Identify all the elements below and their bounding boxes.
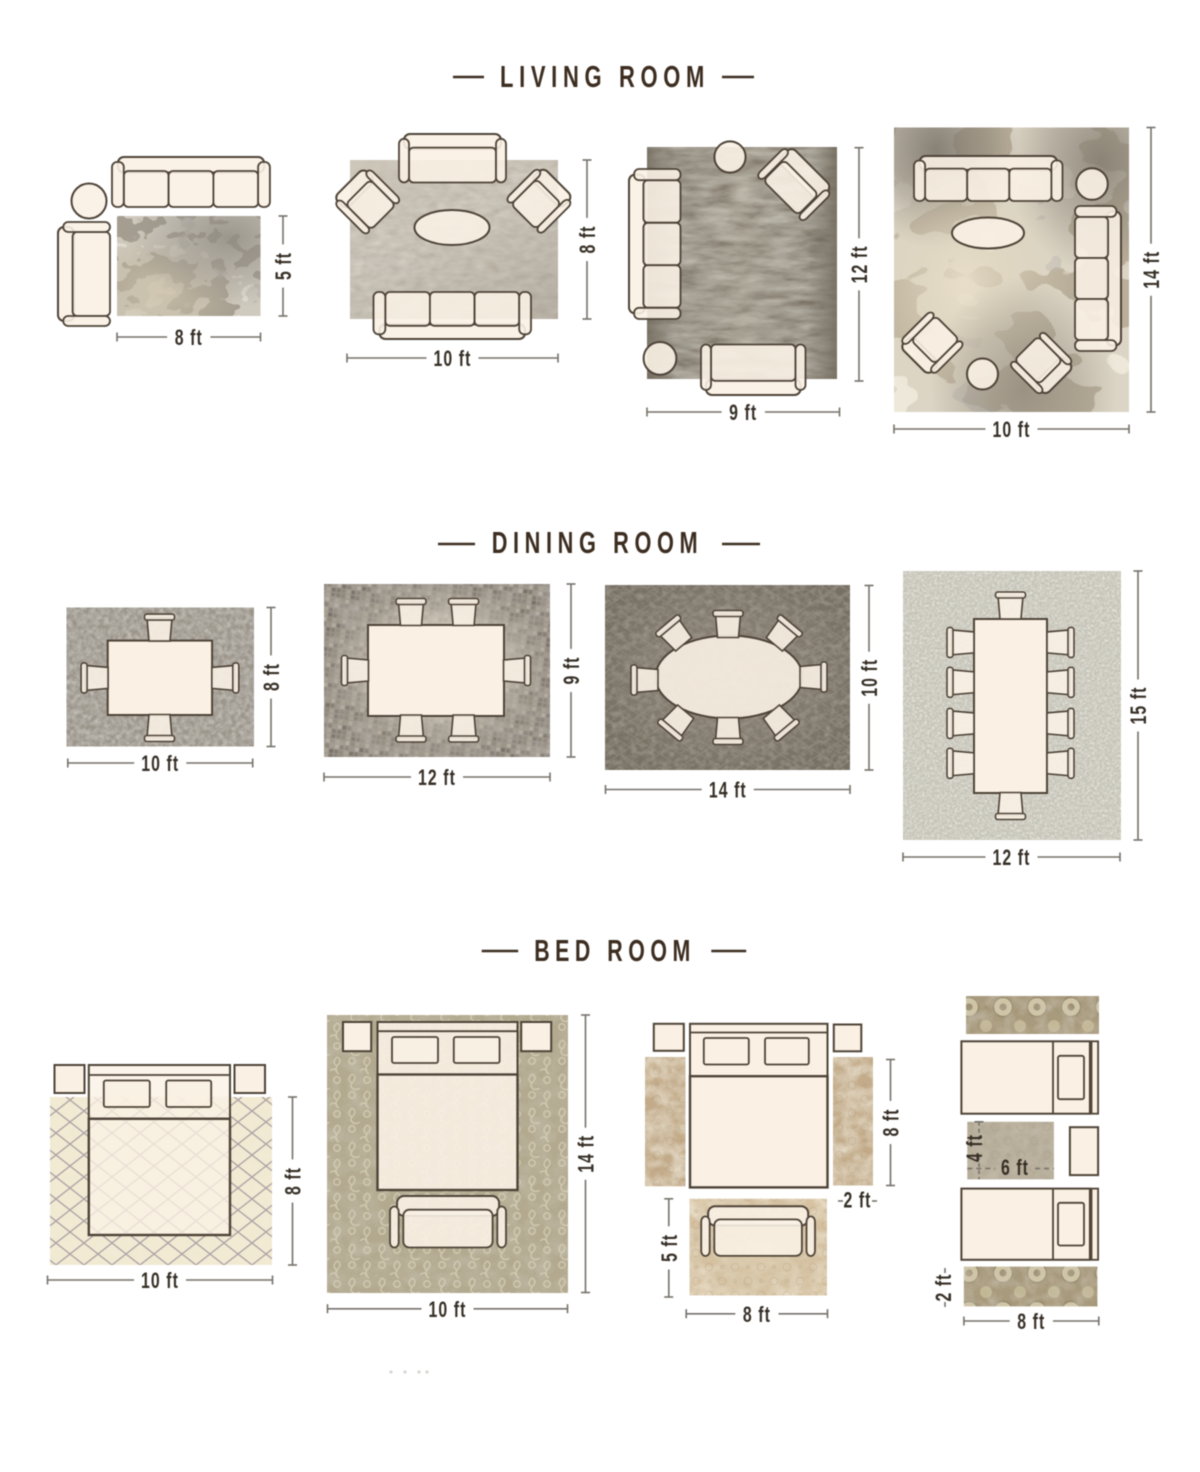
svg-text:8 ft: 8 ft [880, 1108, 904, 1136]
svg-text:8 ft: 8 ft [282, 1167, 306, 1195]
svg-text:14 ft: 14 ft [575, 1135, 599, 1173]
svg-text:DINING ROOM: DINING ROOM [492, 525, 704, 560]
svg-text:4 ft: 4 ft [964, 1134, 988, 1162]
svg-text:10 ft: 10 ft [859, 659, 883, 697]
svg-text:2 ft: 2 ft [843, 1189, 871, 1213]
svg-text:5 ft: 5 ft [658, 1234, 682, 1262]
svg-text:5 ft: 5 ft [273, 252, 297, 280]
svg-text:10 ft: 10 ft [993, 419, 1031, 443]
svg-text:10 ft: 10 ft [429, 1298, 467, 1322]
svg-text:15 ft: 15 ft [1128, 687, 1152, 725]
svg-text:9 ft: 9 ft [729, 402, 757, 426]
svg-text:14 ft: 14 ft [709, 779, 747, 803]
svg-text:12 ft: 12 ft [418, 767, 456, 791]
svg-text:10 ft: 10 ft [141, 1270, 179, 1294]
svg-text:8 ft: 8 ft [261, 663, 285, 691]
svg-text:10 ft: 10 ft [141, 753, 179, 777]
svg-text:14 ft: 14 ft [1141, 251, 1165, 289]
svg-text:8 ft: 8 ft [175, 327, 203, 351]
svg-text:10 ft: 10 ft [434, 348, 472, 372]
svg-text:12 ft: 12 ft [993, 847, 1031, 871]
svg-text:8 ft: 8 ft [577, 225, 601, 253]
svg-text:6 ft: 6 ft [1001, 1157, 1029, 1181]
svg-text:8 ft: 8 ft [1017, 1311, 1045, 1335]
svg-text:8 ft: 8 ft [743, 1303, 771, 1327]
svg-text:BED ROOM: BED ROOM [534, 933, 696, 968]
svg-text:12 ft: 12 ft [849, 245, 873, 283]
svg-text:9 ft: 9 ft [561, 656, 585, 684]
svg-text:LIVING ROOM: LIVING ROOM [500, 59, 710, 94]
svg-text:2 ft: 2 ft [933, 1273, 957, 1301]
